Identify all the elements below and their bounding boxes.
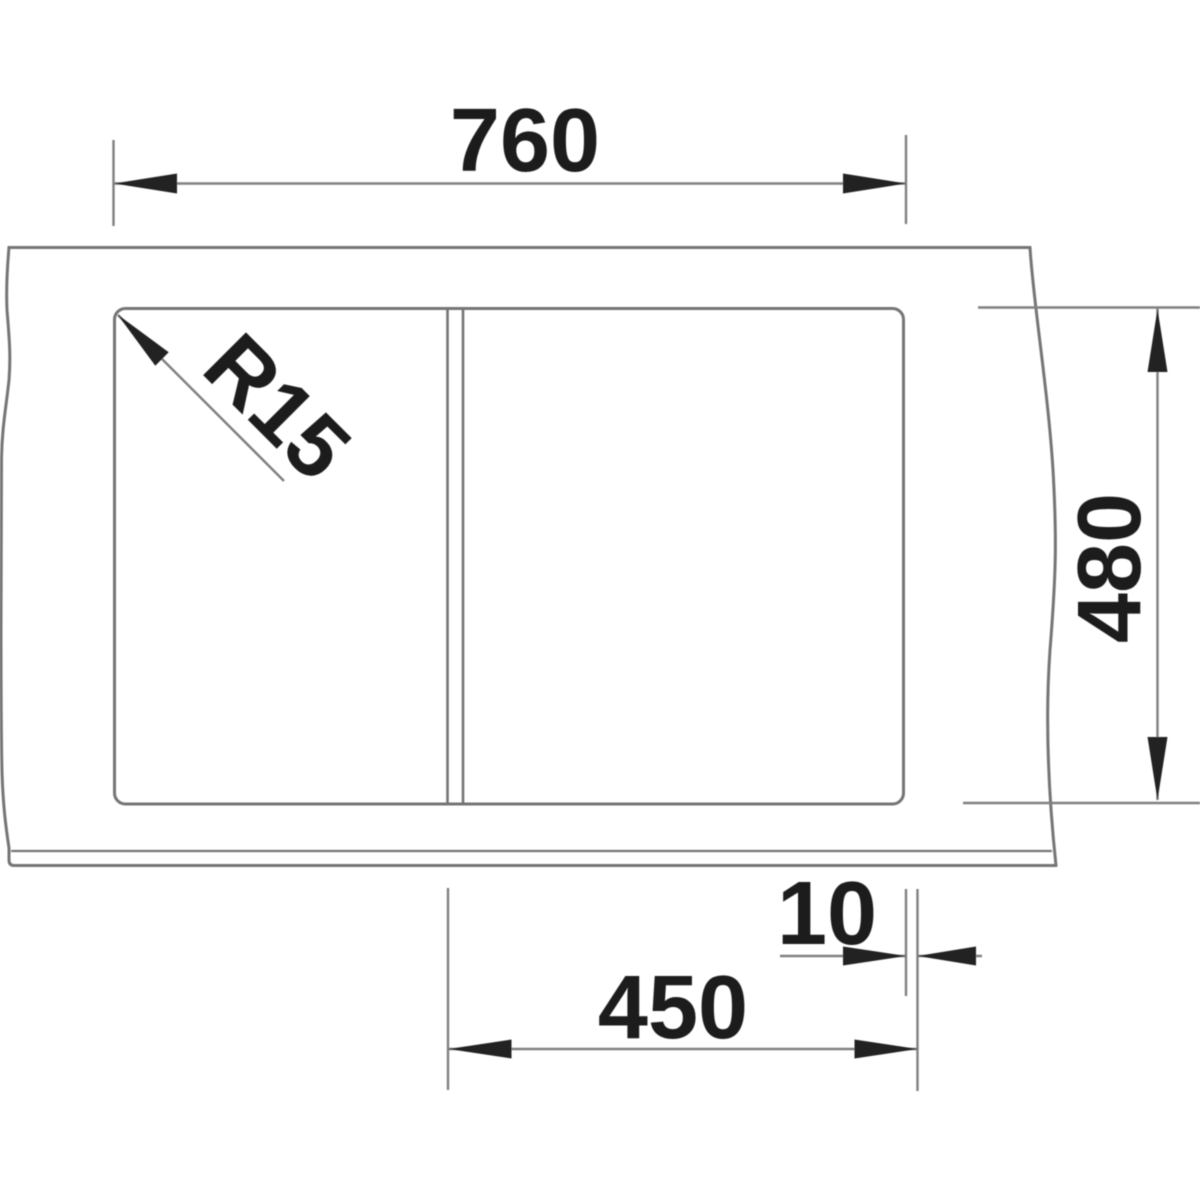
svg-text:760: 760 [450, 91, 600, 191]
svg-text:10: 10 [777, 864, 877, 964]
svg-text:480: 480 [1060, 493, 1160, 643]
svg-text:450: 450 [598, 958, 748, 1058]
